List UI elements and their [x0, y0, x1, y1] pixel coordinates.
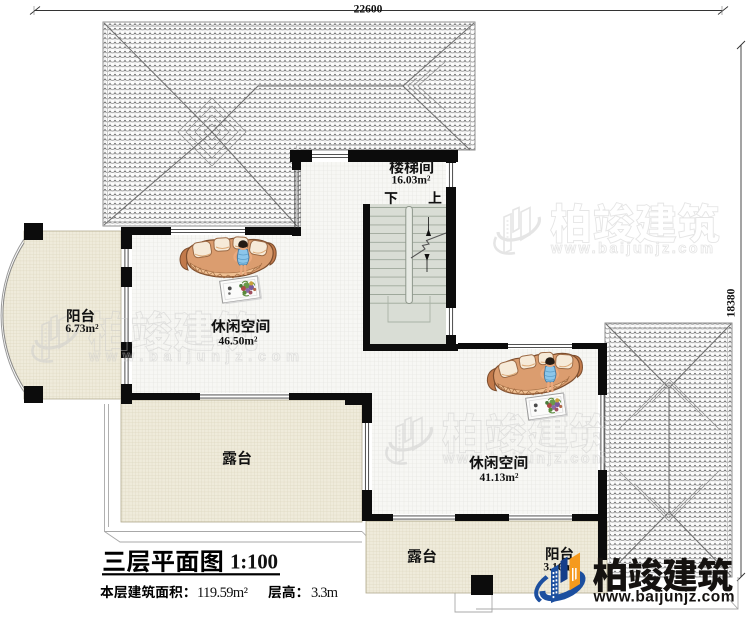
- svg-text:6.73m²: 6.73m²: [65, 323, 99, 335]
- svg-text:3.3m: 3.3m: [311, 585, 339, 601]
- svg-text:1:100: 1:100: [230, 550, 278, 574]
- svg-text:22600: 22600: [354, 4, 383, 16]
- svg-text:16.03m²: 16.03m²: [392, 175, 431, 187]
- svg-text:18380: 18380: [726, 288, 738, 317]
- svg-text:46.50m²: 46.50m²: [219, 336, 258, 348]
- svg-text:41.13m²: 41.13m²: [480, 472, 519, 484]
- svg-text:119.59m²: 119.59m²: [197, 585, 249, 601]
- svg-text:www.baijunjz.com: www.baijunjz.com: [593, 589, 735, 606]
